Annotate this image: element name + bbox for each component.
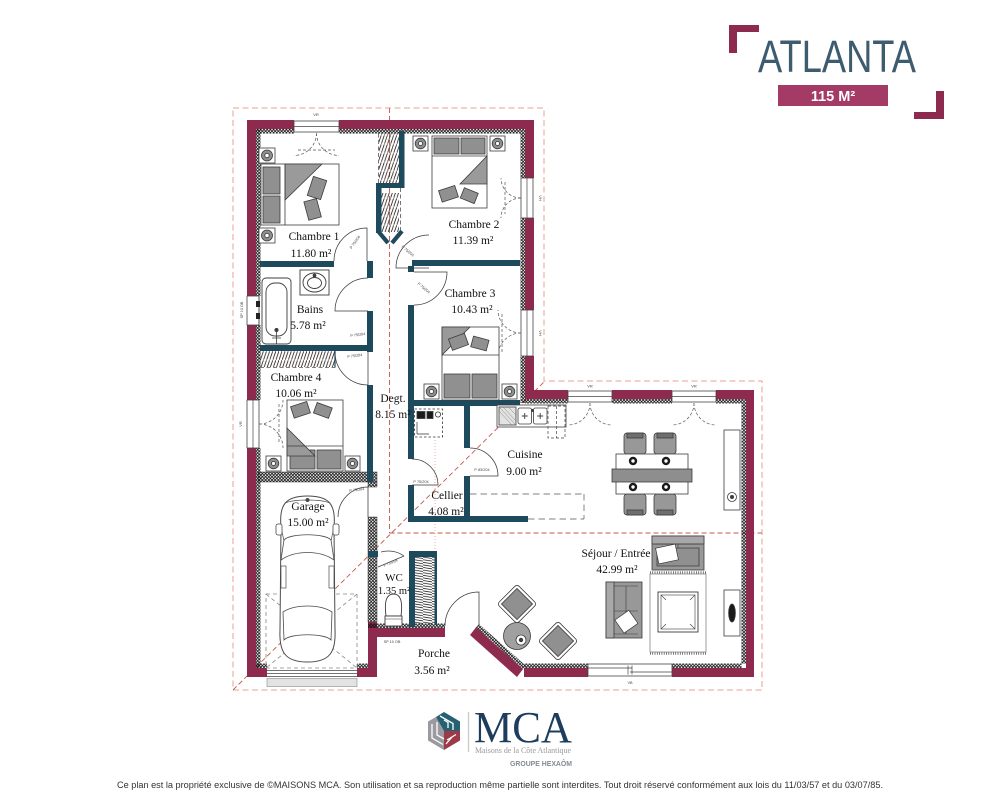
svg-text:11.39 m²: 11.39 m² (453, 235, 494, 247)
svg-text:GROUPE HEXAÔM: GROUPE HEXAÔM (510, 759, 572, 768)
svg-text:VR: VR (691, 384, 697, 389)
svg-text:4.08 m²: 4.08 m² (428, 506, 464, 518)
svg-text:42.99 m²: 42.99 m² (596, 564, 638, 576)
svg-text:8.15 m²: 8.15 m² (375, 409, 411, 421)
svg-text:VB: VB (627, 681, 633, 685)
svg-text:P 83/204: P 83/204 (474, 468, 489, 472)
svg-text:Chambre 2: Chambre 2 (449, 219, 500, 231)
svg-text:Bains: Bains (297, 304, 324, 316)
svg-text:P 75/204: P 75/204 (413, 480, 428, 484)
svg-text:VH: VH (538, 195, 543, 201)
svg-text:ATLANTA: ATLANTA (758, 31, 916, 82)
svg-text:15.00 m²: 15.00 m² (287, 517, 329, 529)
svg-text:Chambre 4: Chambre 4 (271, 372, 322, 384)
svg-text:5.78 m²: 5.78 m² (290, 320, 326, 332)
svg-text:115 M²: 115 M² (811, 89, 855, 105)
svg-text:Garage: Garage (291, 501, 324, 513)
svg-text:Degt.: Degt. (380, 393, 405, 405)
svg-text:VR: VR (587, 384, 593, 389)
svg-text:SP 10 OB: SP 10 OB (240, 301, 244, 318)
svg-text:Maisons de la Côte Atlantique: Maisons de la Côte Atlantique (475, 745, 571, 755)
svg-text:11.80 m²: 11.80 m² (291, 248, 332, 260)
svg-text:VR: VR (313, 112, 319, 117)
svg-text:VR: VR (238, 421, 243, 427)
svg-text:Chambre 1: Chambre 1 (289, 231, 340, 243)
svg-text:WC: WC (385, 572, 403, 584)
svg-text:10.43 m²: 10.43 m² (451, 304, 493, 316)
svg-text:3.56 m²: 3.56 m² (414, 665, 450, 677)
svg-text:1.35 m²: 1.35 m² (378, 586, 410, 597)
svg-text:Chambre 3: Chambre 3 (445, 288, 496, 300)
svg-text:9.00 m²: 9.00 m² (506, 466, 542, 478)
svg-text:SP 10 OB: SP 10 OB (384, 640, 401, 644)
svg-text:Cuisine: Cuisine (507, 449, 542, 461)
svg-text:Porche: Porche (418, 648, 450, 660)
svg-text:Cellier: Cellier (431, 490, 462, 502)
svg-text:Ce plan est la propriété exclu: Ce plan est la propriété exclusive de ©M… (117, 780, 883, 790)
svg-text:10.06 m²: 10.06 m² (275, 388, 317, 400)
svg-text:Séjour / Entrée: Séjour / Entrée (582, 548, 651, 560)
svg-text:VH: VH (538, 330, 543, 336)
